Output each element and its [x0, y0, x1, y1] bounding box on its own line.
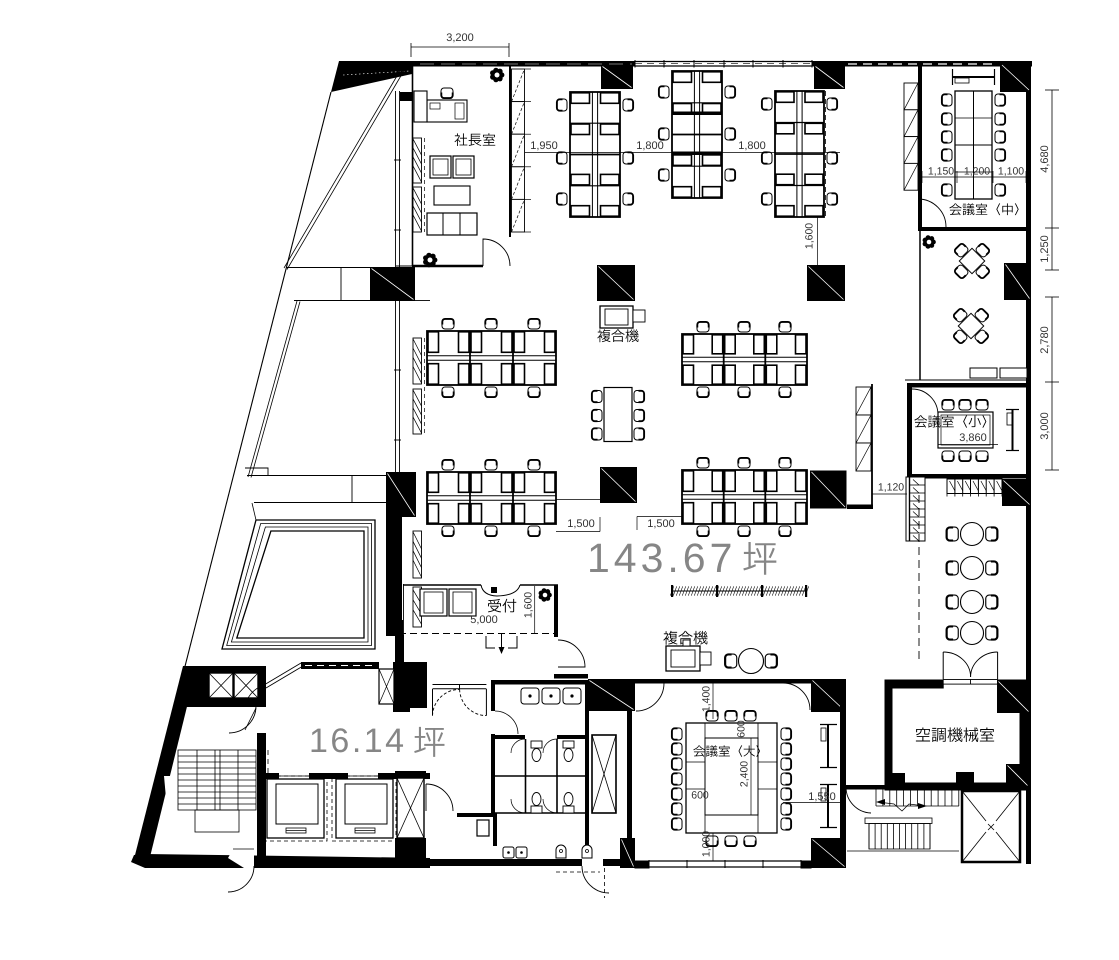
svg-text:1,250: 1,250 [1039, 235, 1051, 263]
svg-text:3,200: 3,200 [446, 32, 474, 44]
svg-text:1,000: 1,000 [701, 831, 713, 857]
svg-text:1,400: 1,400 [701, 686, 713, 712]
svg-text:2,400: 2,400 [739, 761, 751, 787]
svg-text:16.14: 16.14 [309, 722, 407, 760]
svg-text:3,860: 3,860 [959, 432, 987, 444]
svg-text:4,680: 4,680 [1039, 145, 1051, 173]
svg-text:1,600: 1,600 [523, 592, 535, 618]
svg-text:1,500: 1,500 [647, 518, 675, 530]
svg-text:2,780: 2,780 [1039, 326, 1051, 354]
svg-text:1,100: 1,100 [998, 166, 1024, 178]
svg-text:600: 600 [736, 720, 748, 738]
svg-text:5,000: 5,000 [470, 614, 498, 626]
svg-text:1,150: 1,150 [928, 166, 954, 178]
svg-text:143.67: 143.67 [587, 535, 736, 581]
svg-text:1,550: 1,550 [808, 791, 836, 803]
svg-text:1,500: 1,500 [567, 518, 595, 530]
svg-text:1,800: 1,800 [738, 140, 766, 152]
svg-text:1,200: 1,200 [964, 166, 990, 178]
svg-text:1,600: 1,600 [804, 223, 816, 249]
svg-text:1,800: 1,800 [636, 140, 664, 152]
svg-text:1,120: 1,120 [878, 482, 904, 494]
svg-text:600: 600 [691, 790, 709, 802]
svg-text:1,950: 1,950 [530, 140, 558, 152]
svg-text:3,000: 3,000 [1039, 412, 1051, 440]
